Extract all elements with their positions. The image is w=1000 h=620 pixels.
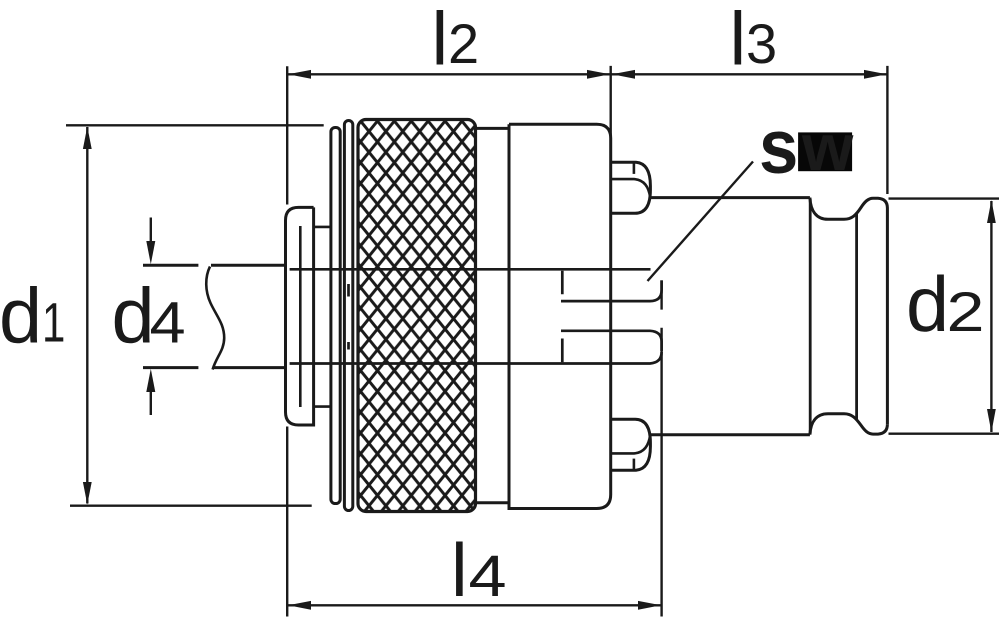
svg-text:d: d <box>906 262 949 348</box>
svg-text:2: 2 <box>448 12 479 75</box>
svg-text:1: 1 <box>42 292 65 354</box>
svg-text:w: w <box>801 110 854 184</box>
svg-text:d: d <box>112 274 155 360</box>
svg-text:2: 2 <box>947 281 985 344</box>
svg-text:d: d <box>0 274 42 360</box>
svg-text:4: 4 <box>150 291 186 356</box>
svg-text:4: 4 <box>469 545 507 609</box>
svg-text:l: l <box>432 0 449 80</box>
svg-text:s: s <box>759 105 798 190</box>
svg-text:l: l <box>730 0 747 80</box>
svg-text:l: l <box>451 528 468 612</box>
svg-text:3: 3 <box>746 12 777 75</box>
